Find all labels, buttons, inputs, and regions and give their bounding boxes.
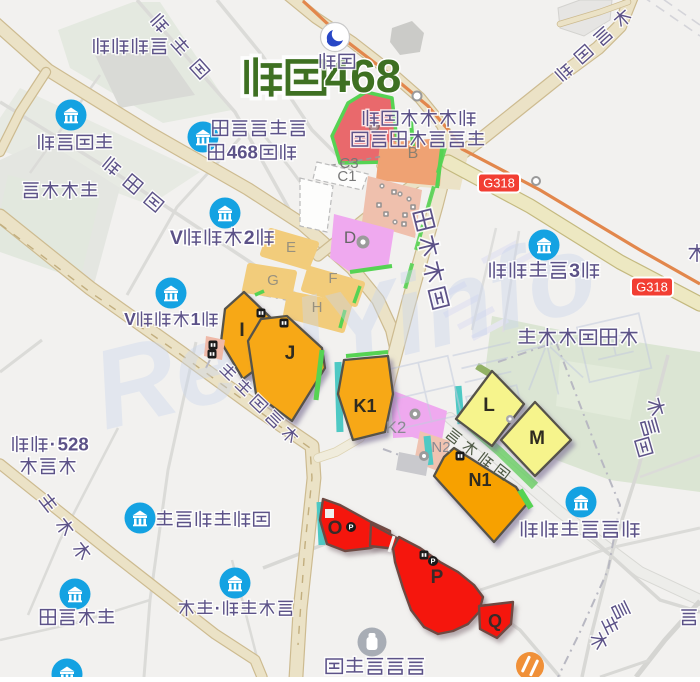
svg-text:N1: N1 [468,470,491,490]
svg-text:P: P [348,523,353,532]
svg-text:L: L [483,395,495,416]
svg-text:I: I [239,320,244,341]
svg-text:H: H [312,299,323,316]
svg-text:G318: G318 [483,176,515,191]
svg-text:V: V [170,227,183,249]
svg-text:M: M [529,428,545,449]
svg-text:3: 3 [569,260,580,282]
svg-text:V: V [124,309,136,329]
svg-text:J: J [285,343,296,364]
svg-text:C1: C1 [337,168,356,185]
svg-text:O: O [328,518,343,539]
svg-text:·: · [50,433,56,454]
svg-text:1: 1 [191,309,201,329]
svg-text:·: · [215,598,221,618]
svg-text:G318: G318 [636,280,668,295]
svg-text:528: 528 [58,433,89,454]
svg-text:P: P [431,567,444,588]
svg-text:2: 2 [244,227,255,249]
svg-text:F: F [328,270,337,287]
svg-text:D: D [344,228,356,247]
svg-text:Q: Q [488,611,502,631]
svg-text:E: E [286,239,296,256]
svg-text:K2: K2 [386,418,407,437]
svg-text:P: P [430,557,435,566]
svg-text:468: 468 [227,141,258,162]
svg-text:G: G [267,272,279,289]
svg-text:N2: N2 [431,439,450,456]
svg-text:K1: K1 [353,396,376,416]
